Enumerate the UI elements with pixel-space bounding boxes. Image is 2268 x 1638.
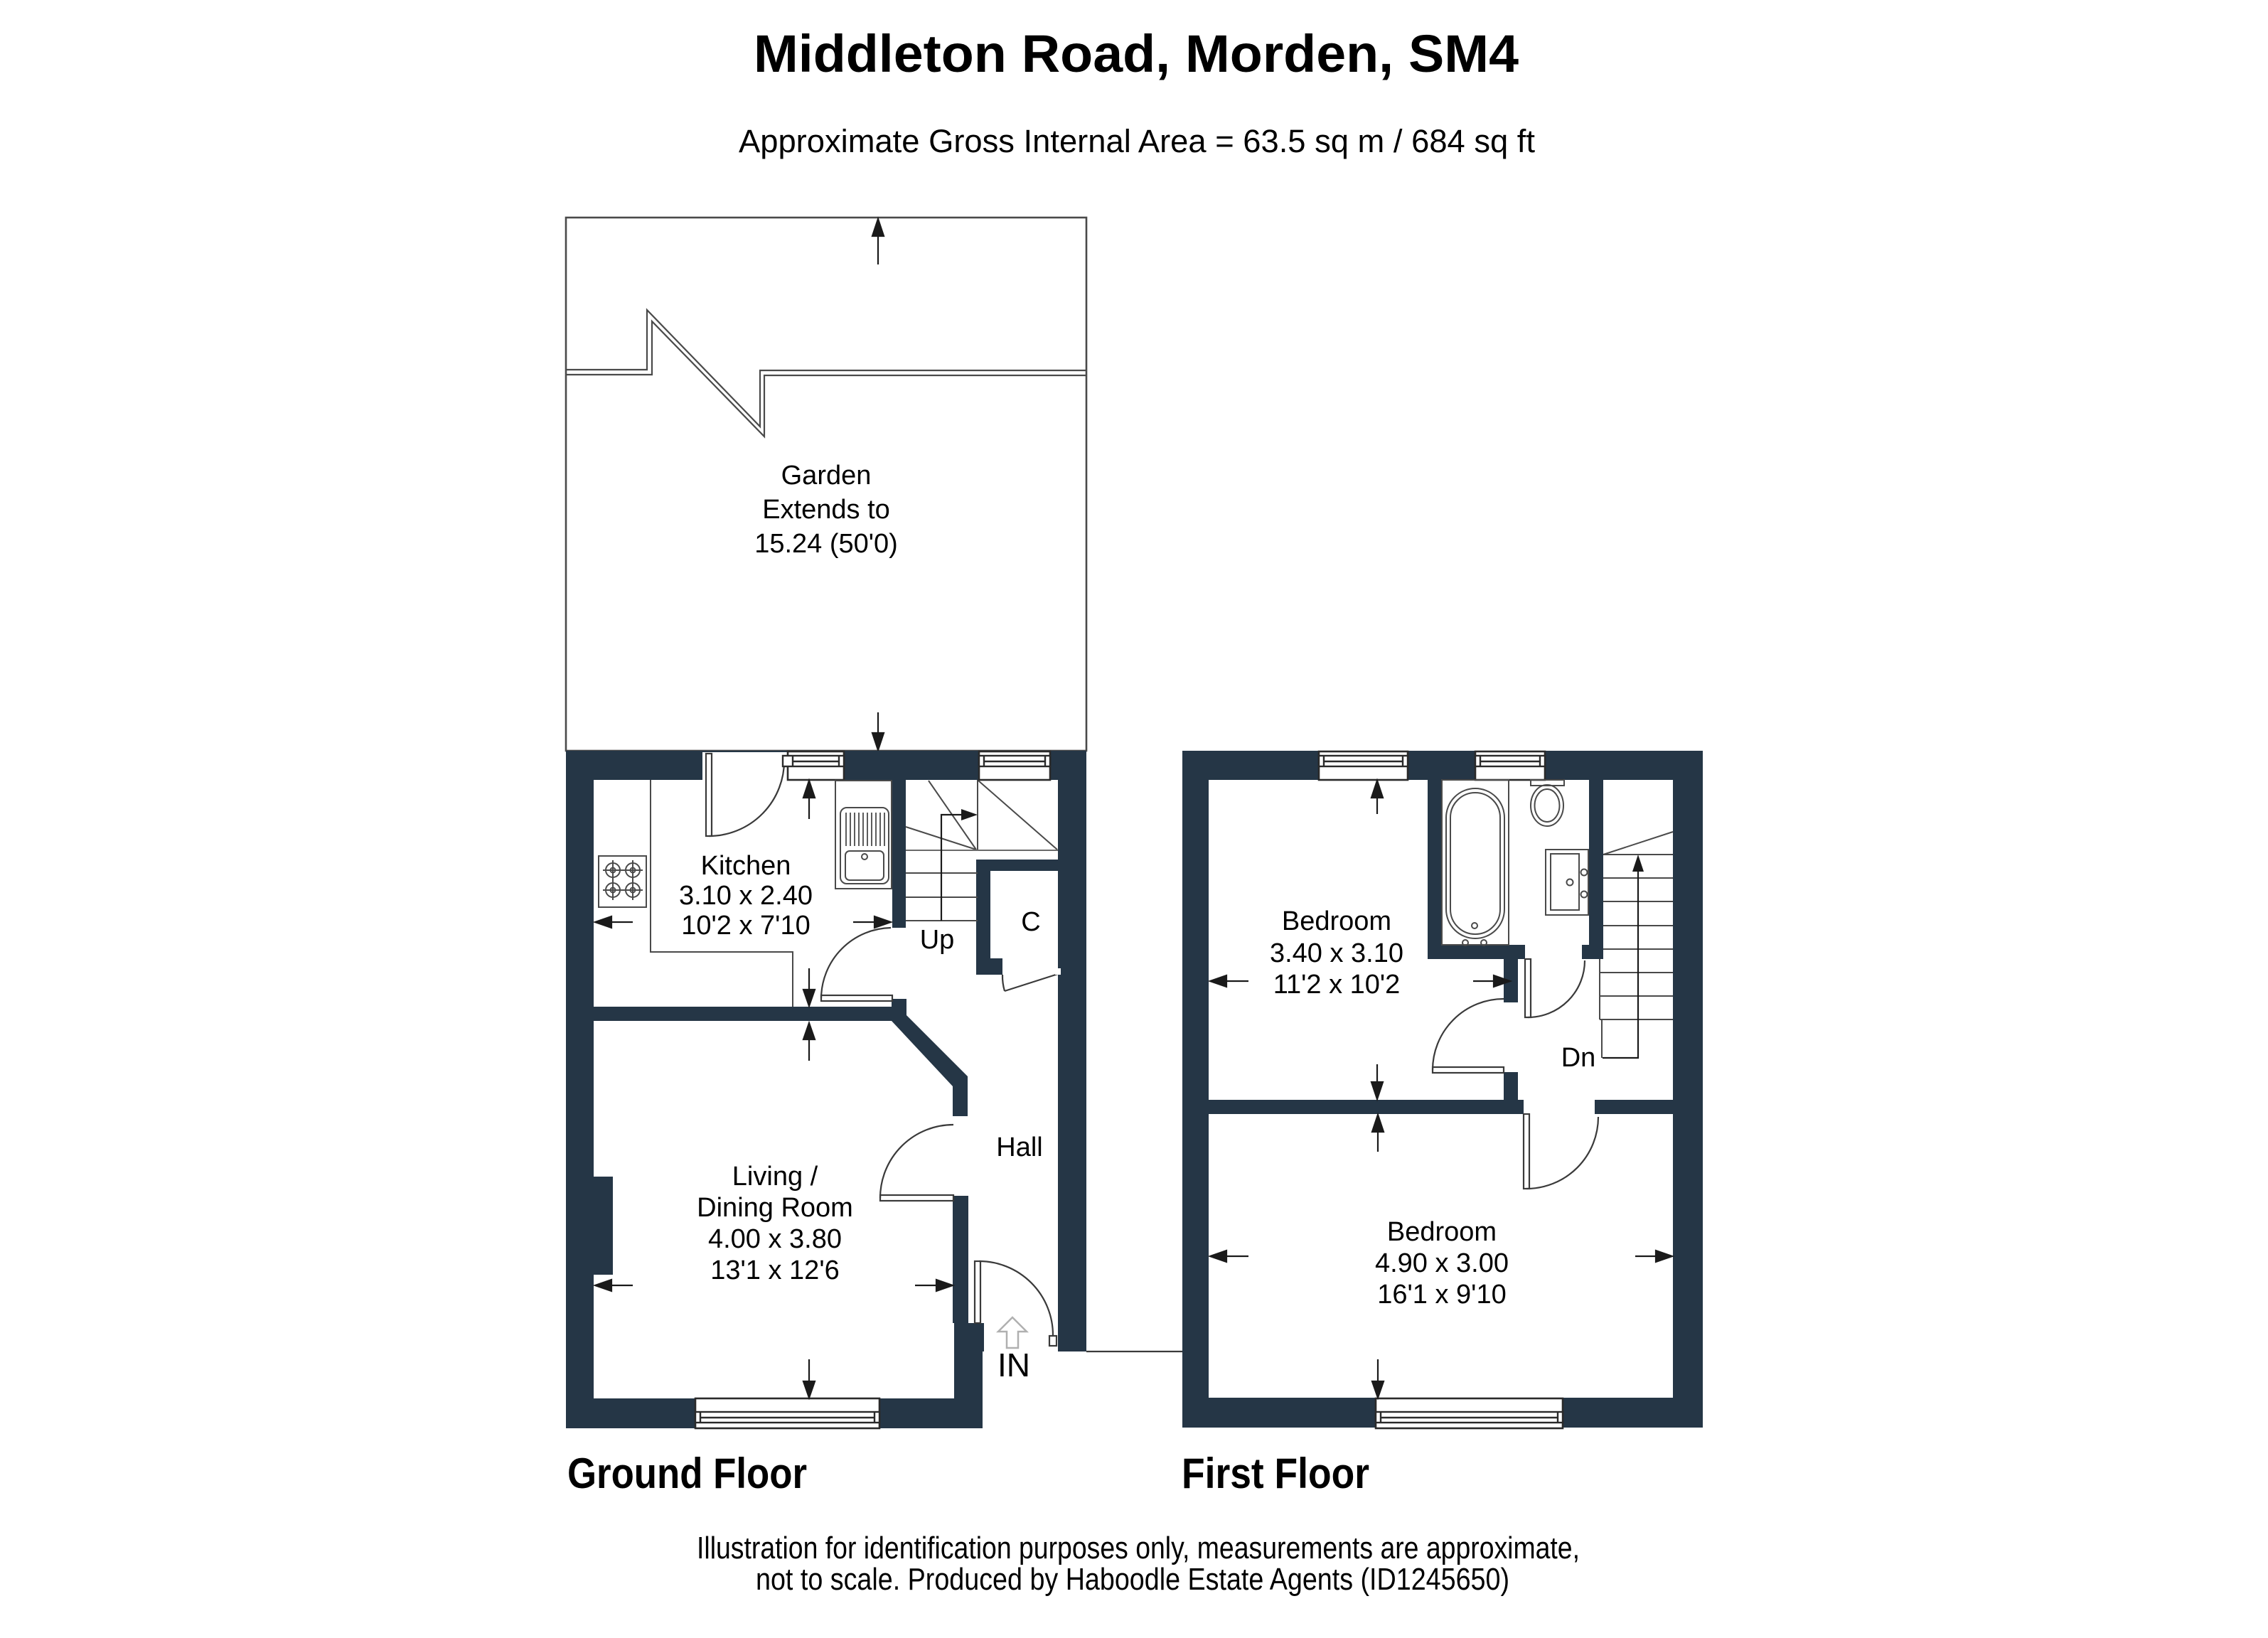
svg-text:10'2 x 7'10: 10'2 x 7'10 — [681, 911, 810, 941]
svg-text:13'1 x 12'6: 13'1 x 12'6 — [710, 1256, 839, 1285]
svg-text:Middleton Road, Morden, SM4: Middleton Road, Morden, SM4 — [754, 24, 1519, 83]
svg-text:Dn: Dn — [1561, 1043, 1596, 1073]
svg-text:4.00 x 3.80: 4.00 x 3.80 — [708, 1224, 842, 1254]
svg-text:Approximate Gross Internal Are: Approximate Gross Internal Area = 63.5 s… — [739, 123, 1535, 159]
svg-text:Dining Room: Dining Room — [697, 1193, 853, 1223]
svg-text:Illustration for identificatio: Illustration for identification purposes… — [697, 1531, 1580, 1565]
svg-text:C: C — [1021, 907, 1040, 937]
svg-text:15.24 (50'0): 15.24 (50'0) — [754, 529, 898, 559]
svg-text:Extends to: Extends to — [762, 495, 890, 525]
svg-text:not to scale. Produced by Habo: not to scale. Produced by Haboodle Estat… — [756, 1562, 1509, 1597]
svg-text:Hall: Hall — [996, 1133, 1042, 1162]
svg-text:Living /: Living / — [732, 1162, 818, 1192]
svg-text:First Floor: First Floor — [1182, 1450, 1369, 1497]
svg-text:Up: Up — [920, 925, 955, 955]
svg-text:3.10 x 2.40: 3.10 x 2.40 — [679, 881, 813, 911]
svg-text:Bedroom: Bedroom — [1282, 906, 1391, 936]
svg-text:IN: IN — [997, 1347, 1030, 1383]
svg-text:3.40 x 3.10: 3.40 x 3.10 — [1270, 938, 1403, 968]
svg-text:Garden: Garden — [781, 461, 872, 491]
svg-text:4.90 x 3.00: 4.90 x 3.00 — [1375, 1248, 1509, 1278]
svg-text:Ground Floor: Ground Floor — [567, 1450, 807, 1497]
svg-text:11'2 x 10'2: 11'2 x 10'2 — [1273, 970, 1401, 1000]
svg-text:Bedroom: Bedroom — [1387, 1217, 1497, 1247]
svg-text:Kitchen: Kitchen — [701, 851, 791, 881]
svg-text:16'1 x 9'10: 16'1 x 9'10 — [1377, 1280, 1506, 1310]
